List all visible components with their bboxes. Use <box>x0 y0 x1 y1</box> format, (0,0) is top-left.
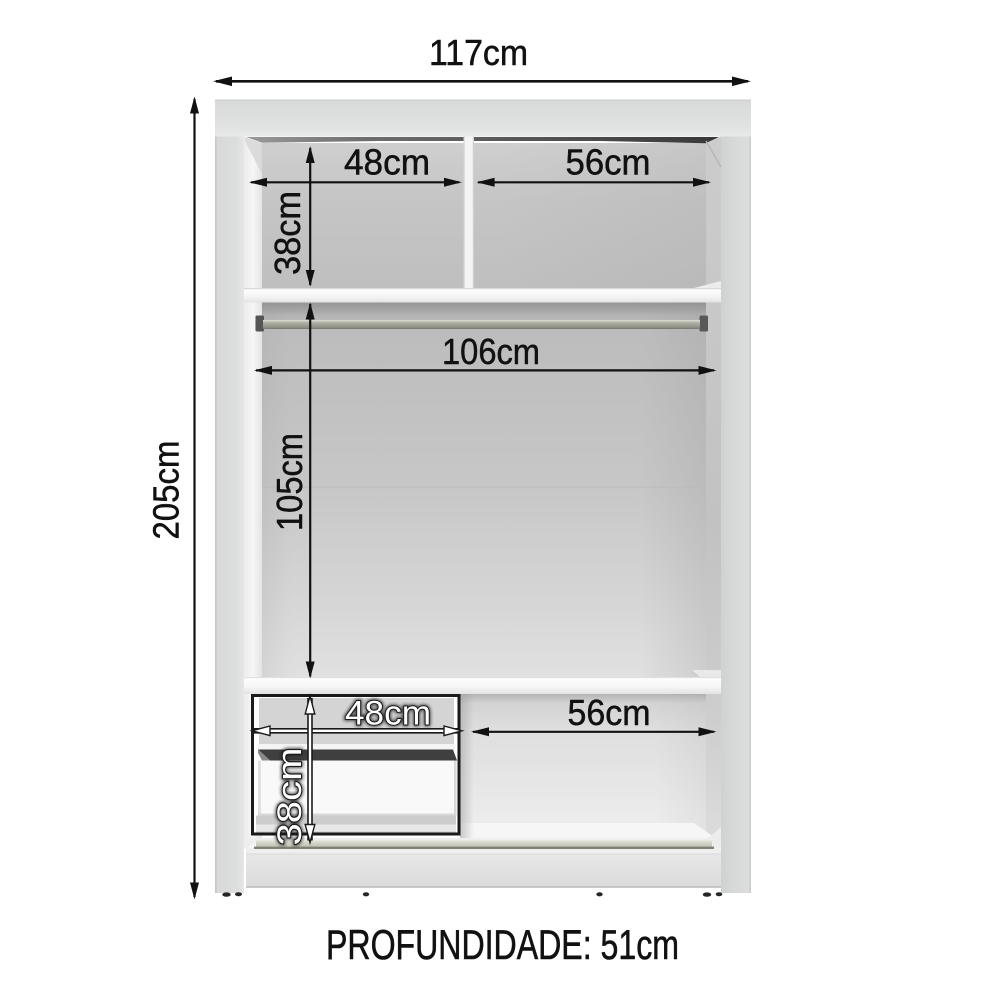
svg-text:105cm: 105cm <box>269 433 310 531</box>
svg-text:205cm: 205cm <box>146 441 187 540</box>
svg-text:48cm: 48cm <box>344 142 430 183</box>
svg-text:56cm: 56cm <box>568 692 651 733</box>
svg-text:38cm: 38cm <box>267 191 308 275</box>
svg-text:48cm: 48cm <box>345 695 431 733</box>
svg-text:106cm: 106cm <box>442 331 540 372</box>
svg-text:117cm: 117cm <box>429 32 528 73</box>
svg-text:38cm: 38cm <box>271 748 309 846</box>
svg-text:56cm: 56cm <box>566 142 651 183</box>
svg-text:PROFUNDIDADE: 51cm: PROFUNDIDADE: 51cm <box>326 921 679 968</box>
